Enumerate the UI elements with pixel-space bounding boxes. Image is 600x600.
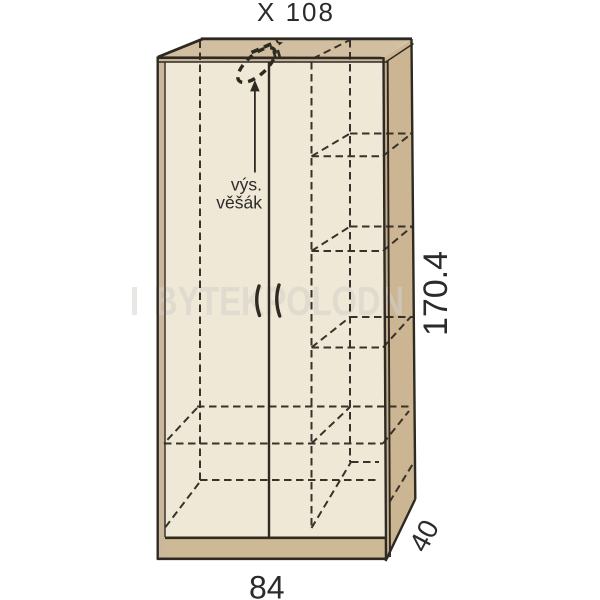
svg-text:84: 84	[249, 570, 285, 600]
svg-text:40: 40	[403, 515, 445, 557]
svg-text:věšák: věšák	[216, 193, 262, 213]
svg-text:170.4: 170.4	[417, 251, 455, 336]
svg-text:výs.: výs.	[231, 175, 262, 195]
svg-text:X 108: X 108	[257, 0, 335, 27]
